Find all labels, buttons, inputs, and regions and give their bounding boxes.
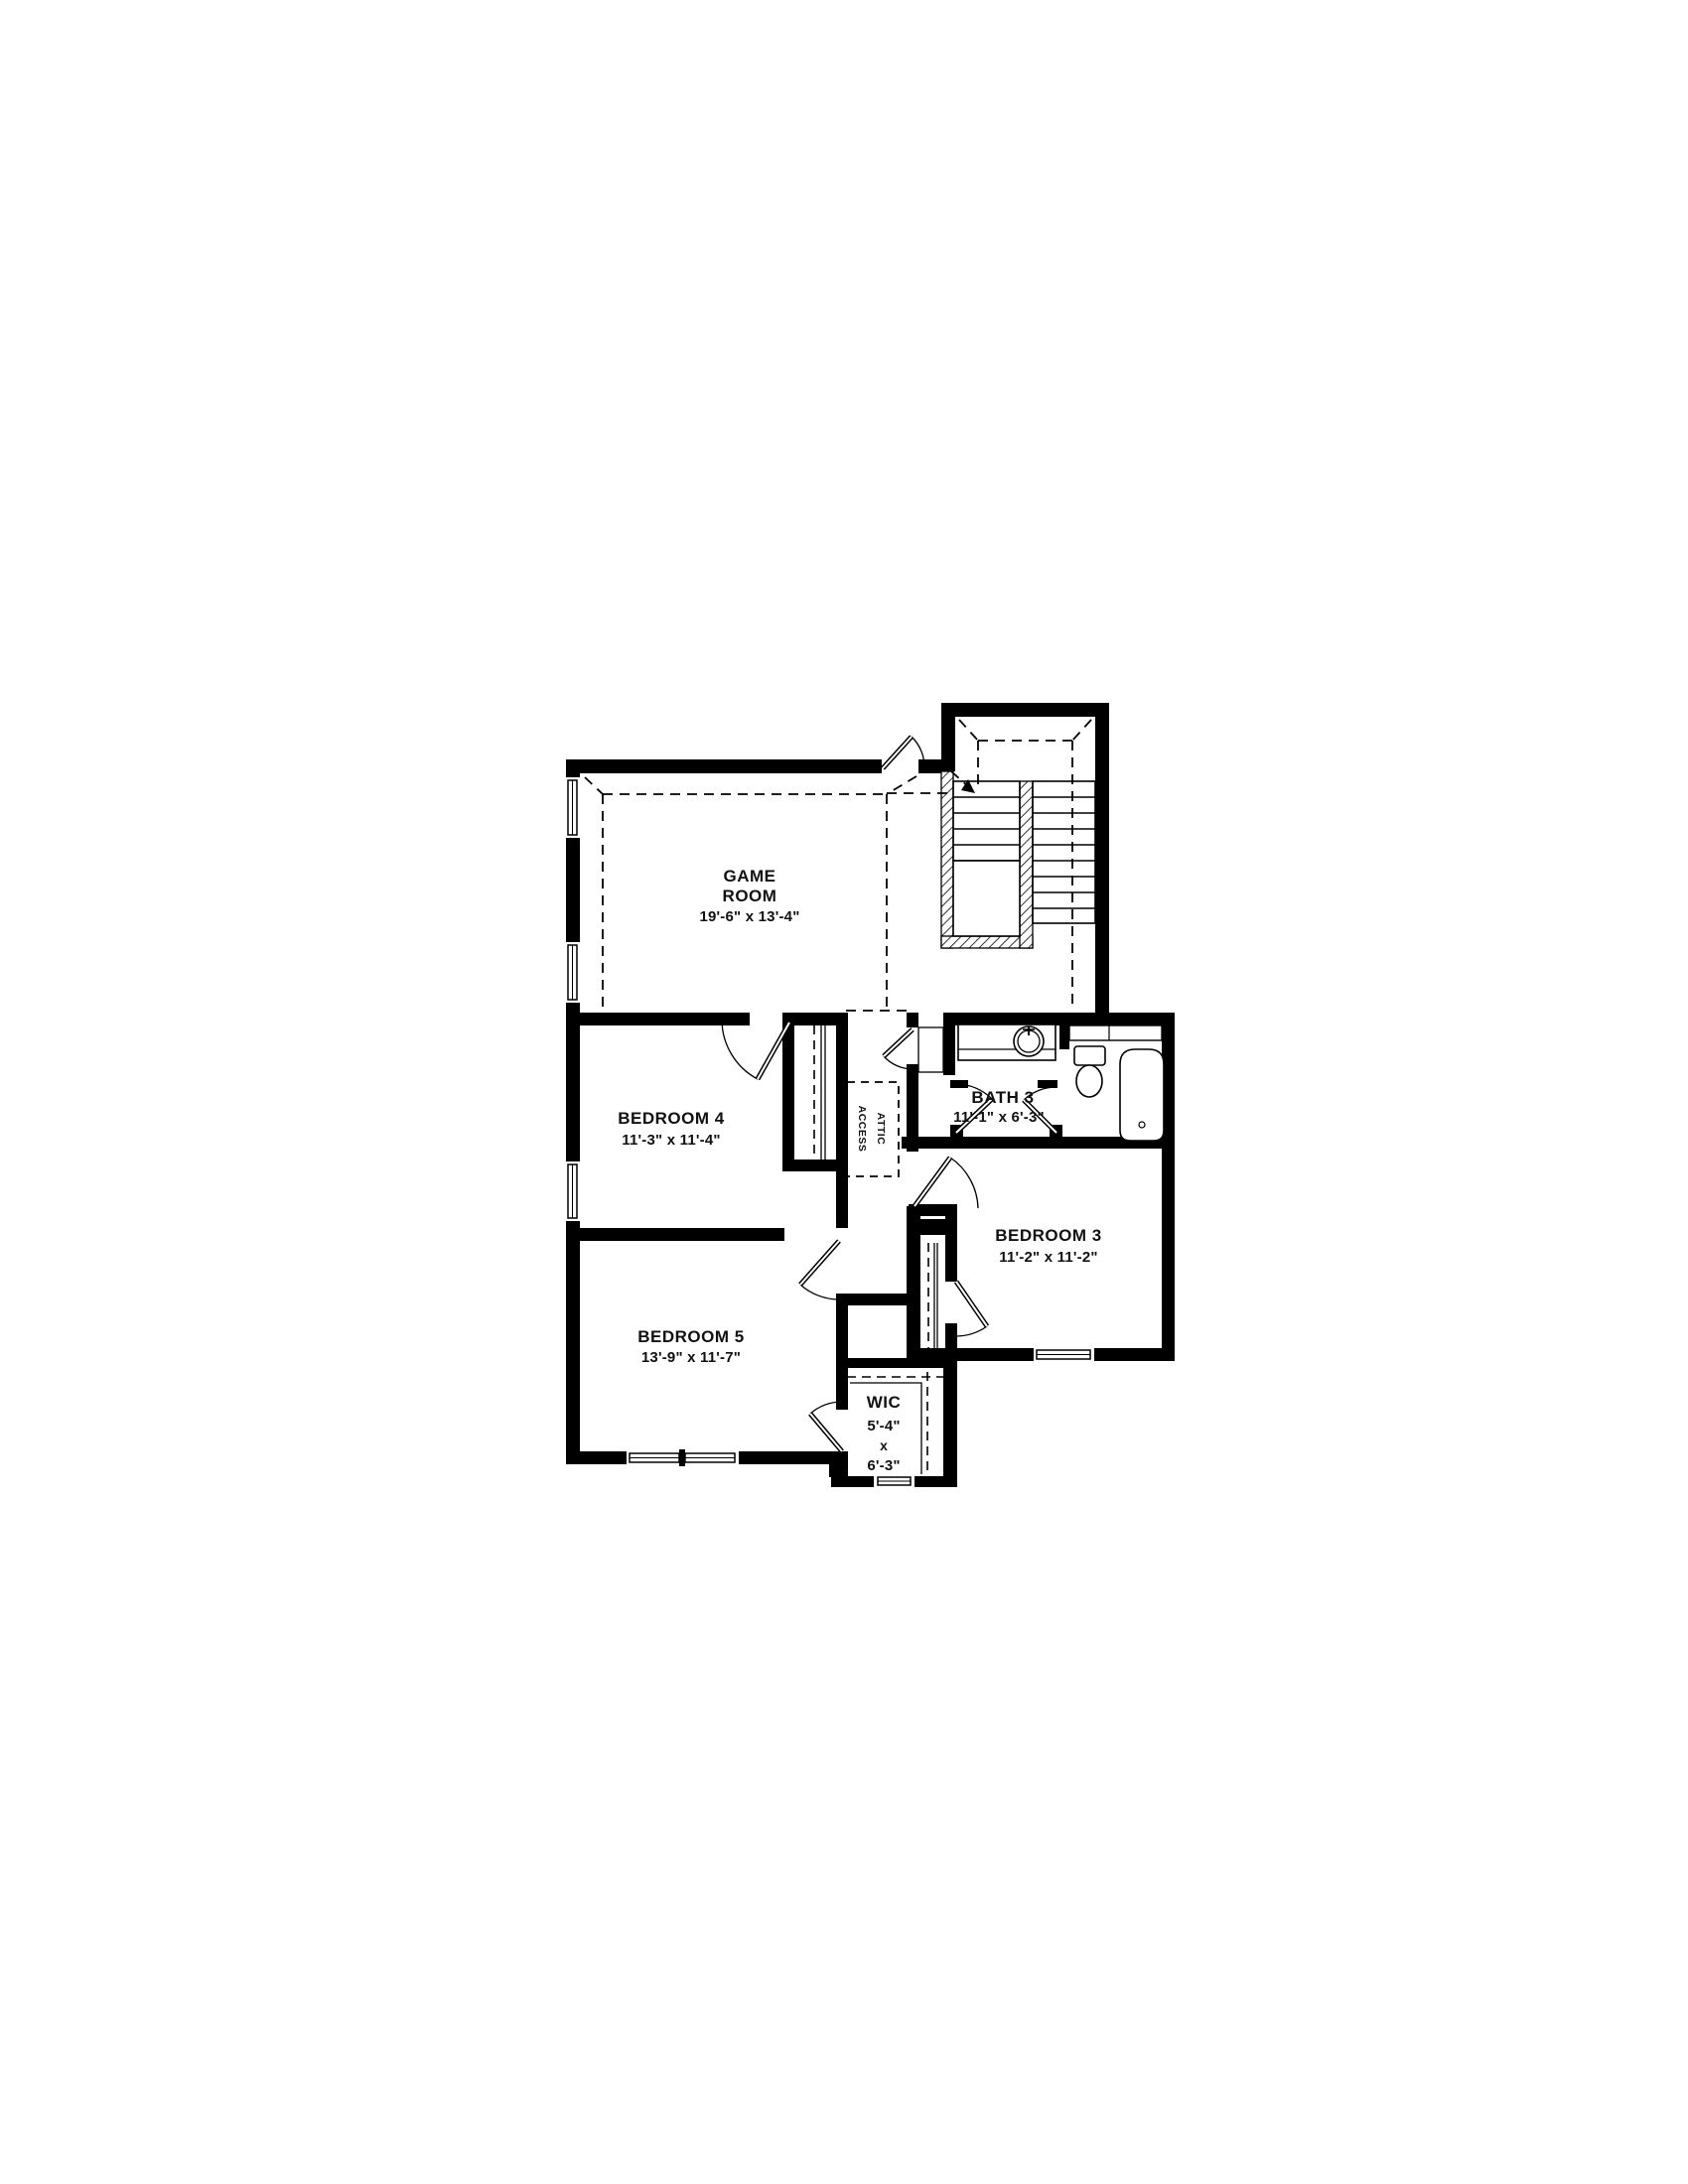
stair-rail-bottom: [941, 936, 1033, 948]
window-game-room-upper: [564, 777, 581, 838]
wic-dim-separator: x: [880, 1437, 888, 1453]
attic-access-label-line1: ATTIC: [875, 1113, 887, 1146]
toilet: [1074, 1046, 1105, 1097]
bath-3-label: BATH 3: [971, 1088, 1034, 1107]
window-bedroom-5-double: [627, 1449, 739, 1466]
bedroom-5-dimensions: 13'-9" x 11'-7": [641, 1349, 741, 1366]
door-bedroom-5: [800, 1241, 839, 1299]
wic-dim-depth: 6'-3": [867, 1457, 900, 1474]
door-hall-closet: [884, 1029, 913, 1069]
stair-treads-right-run: [1033, 781, 1095, 923]
game-room-dimensions: 19'-6" x 13'-4": [699, 908, 799, 925]
bedroom-5-label: BEDROOM 5: [637, 1327, 744, 1346]
window-wic: [874, 1474, 914, 1489]
window-bedroom-3: [1034, 1346, 1094, 1363]
attic-access-panel: ATTIC ACCESS: [847, 1082, 899, 1176]
stair-rail-left: [941, 771, 953, 948]
shelf-over-toilet: [1069, 1025, 1162, 1040]
window-game-room-lower: [564, 942, 581, 1003]
hall-closet-interior: [918, 1027, 943, 1072]
stair-treads-left-run: [953, 781, 1020, 861]
bath-3-dimensions: 11'-1" x 6'-3": [953, 1109, 1045, 1126]
game-room-label-line2: ROOM: [723, 887, 777, 905]
bedroom-3-dimensions: 11'-2" x 11'-2": [999, 1249, 1097, 1266]
stair-open-well: [953, 861, 1020, 936]
floor-plan-drawing: ATTIC ACCESS: [0, 0, 1688, 2184]
bedroom-4-label: BEDROOM 4: [618, 1109, 725, 1128]
bathtub: [1120, 1049, 1164, 1141]
attic-access-label-line2: ACCESS: [856, 1106, 868, 1153]
door-bedroom-3: [914, 1158, 978, 1208]
door-bedroom-3-closet: [956, 1282, 987, 1336]
floor-plan-page: ATTIC ACCESS: [0, 0, 1688, 2184]
door-game-room-top: [883, 737, 924, 768]
window-bedroom-4: [564, 1161, 581, 1221]
bedroom-4-dimensions: 11'-3" x 11'-4": [622, 1132, 720, 1149]
stair-rail-center: [1020, 781, 1033, 948]
game-room-label-line1: GAME: [724, 867, 776, 886]
bedroom-3-label: BEDROOM 3: [995, 1226, 1101, 1245]
wic-dim-width: 5'-4": [867, 1418, 900, 1434]
wic-label: WIC: [867, 1393, 902, 1412]
vanity-sink: [958, 1024, 1055, 1060]
door-bedroom-4: [722, 1020, 789, 1079]
